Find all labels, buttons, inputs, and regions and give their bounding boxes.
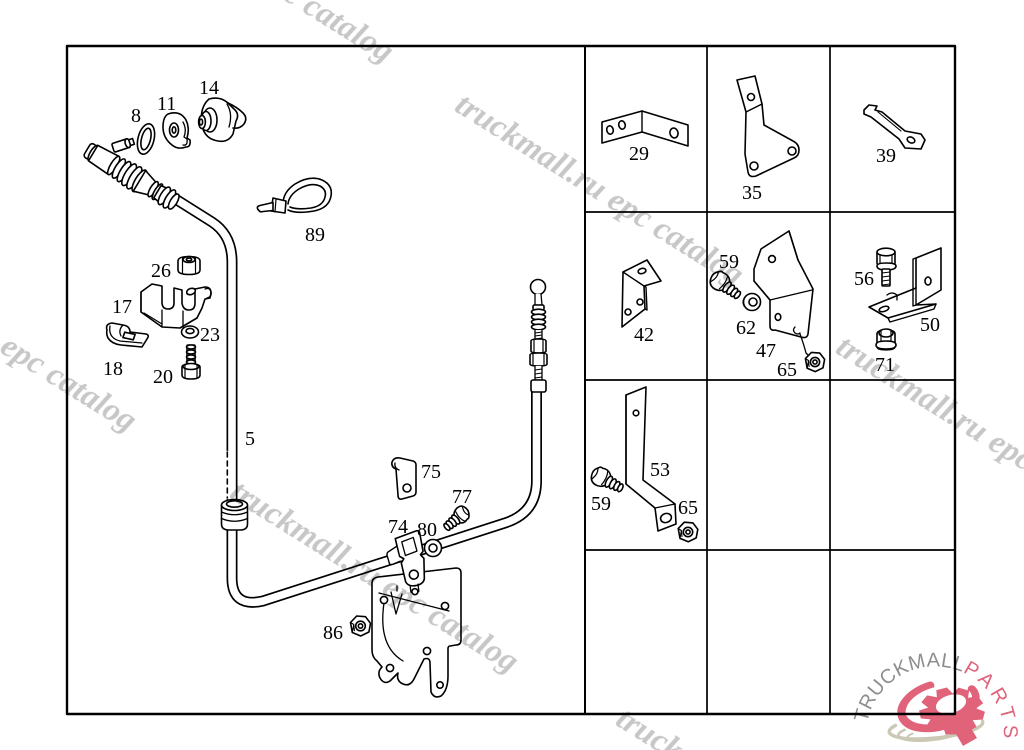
svg-text:59: 59	[591, 493, 611, 515]
svg-text:75: 75	[421, 461, 441, 483]
svg-text:42: 42	[634, 324, 654, 346]
svg-text:14: 14	[199, 77, 219, 99]
svg-text:26: 26	[151, 260, 171, 282]
svg-text:89: 89	[305, 224, 325, 246]
svg-text:18: 18	[103, 358, 123, 380]
svg-text:29: 29	[629, 143, 649, 165]
svg-text:11: 11	[157, 93, 176, 115]
svg-text:65: 65	[777, 359, 797, 381]
svg-text:62: 62	[736, 317, 756, 339]
svg-text:39: 39	[876, 145, 896, 167]
svg-text:8: 8	[131, 105, 141, 127]
svg-text:74: 74	[388, 516, 408, 538]
svg-text:50: 50	[920, 314, 940, 336]
svg-text:20: 20	[153, 366, 173, 388]
svg-text:77: 77	[452, 486, 472, 508]
svg-text:23: 23	[200, 324, 220, 346]
svg-text:47: 47	[756, 340, 776, 362]
svg-text:5: 5	[245, 428, 255, 450]
svg-text:80: 80	[417, 519, 437, 541]
svg-text:56: 56	[854, 268, 874, 290]
svg-text:65: 65	[678, 497, 698, 519]
svg-text:53: 53	[650, 459, 670, 481]
svg-text:35: 35	[742, 182, 762, 204]
svg-text:86: 86	[323, 622, 343, 644]
svg-text:17: 17	[112, 296, 132, 318]
